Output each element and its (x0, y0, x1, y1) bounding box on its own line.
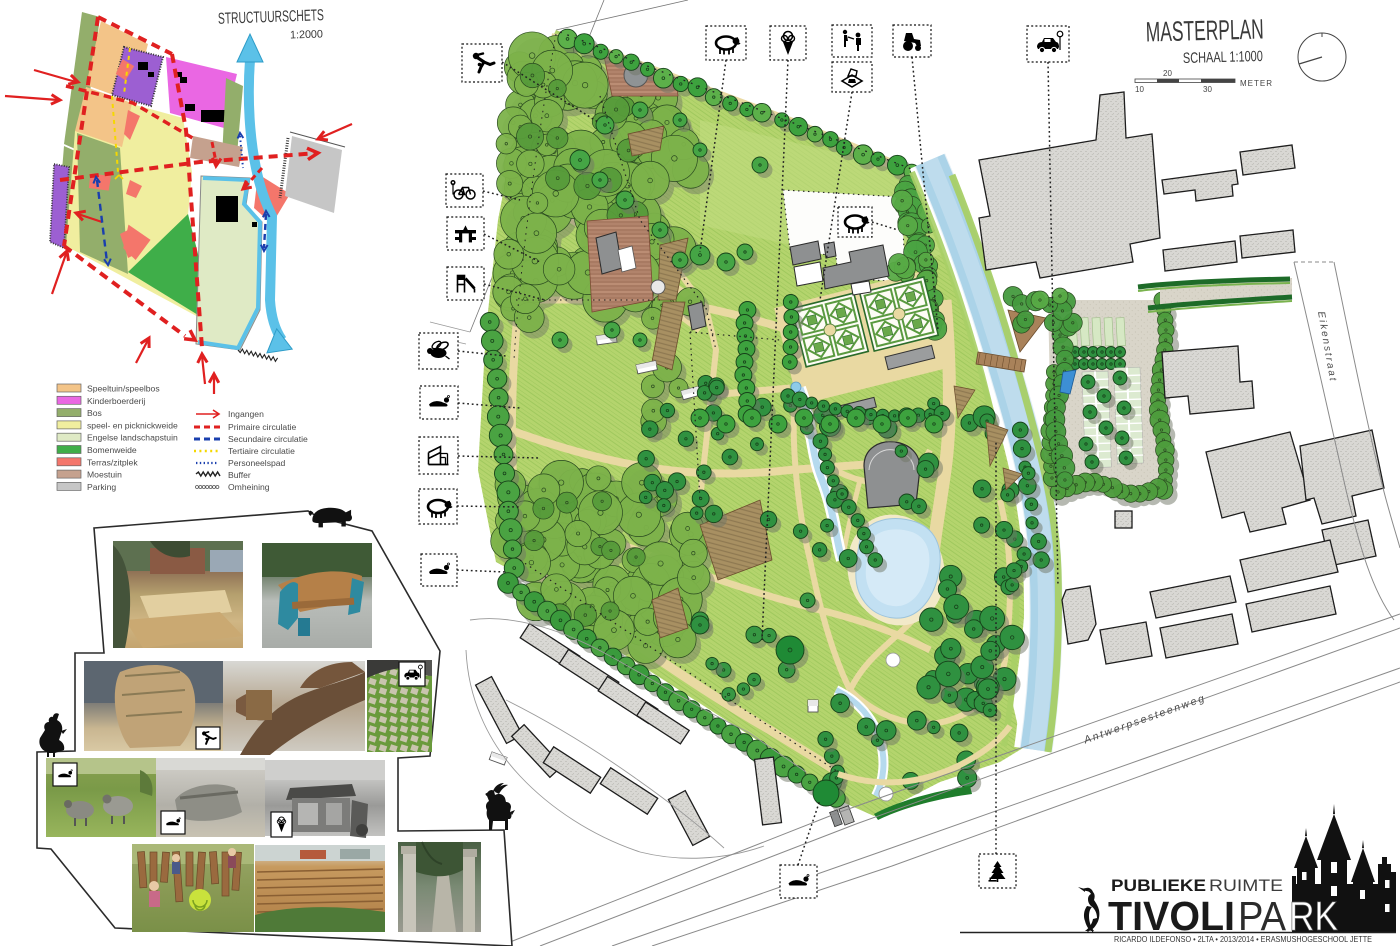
svg-text:Moestuin: Moestuin (87, 470, 122, 480)
svg-text:Engelse landschapstuin: Engelse landschapstuin (87, 433, 178, 443)
svg-text:Buffer: Buffer (228, 470, 251, 480)
svg-text:Tertiaire circulatie: Tertiaire circulatie (228, 446, 295, 456)
svg-text:30: 30 (1203, 85, 1212, 94)
svg-text:RICARDO ILDEFONSO • 2LTA • 201: RICARDO ILDEFONSO • 2LTA • 2013/2014 • E… (1114, 935, 1372, 944)
svg-text:10: 10 (1135, 85, 1144, 94)
svg-text:SCHAAL 1:1000: SCHAAL 1:1000 (1183, 48, 1263, 67)
svg-text:Terras/zitplek: Terras/zitplek (87, 457, 138, 467)
svg-text:Speeltuin/speelbos: Speeltuin/speelbos (87, 384, 160, 394)
svg-text:1:2000: 1:2000 (290, 28, 323, 41)
svg-text:Bos: Bos (87, 408, 102, 418)
svg-text:Kinderboerderij: Kinderboerderij (87, 396, 145, 406)
svg-text:20: 20 (1163, 69, 1172, 78)
svg-text:Ingangen: Ingangen (228, 409, 264, 419)
svg-text:Personeelspad: Personeelspad (228, 458, 286, 468)
svg-text:METER: METER (1240, 79, 1273, 88)
svg-text:MASTERPLAN: MASTERPLAN (1145, 13, 1264, 47)
svg-text:Primaire circulatie: Primaire circulatie (228, 422, 297, 432)
svg-text:Secundaire circulatie: Secundaire circulatie (228, 434, 308, 444)
svg-text:Omheining: Omheining (228, 482, 270, 492)
svg-text:Parking: Parking (87, 482, 116, 492)
svg-text:speel- en picknickweide: speel- en picknickweide (87, 420, 178, 430)
svg-text:Bomenweide: Bomenweide (87, 445, 137, 455)
